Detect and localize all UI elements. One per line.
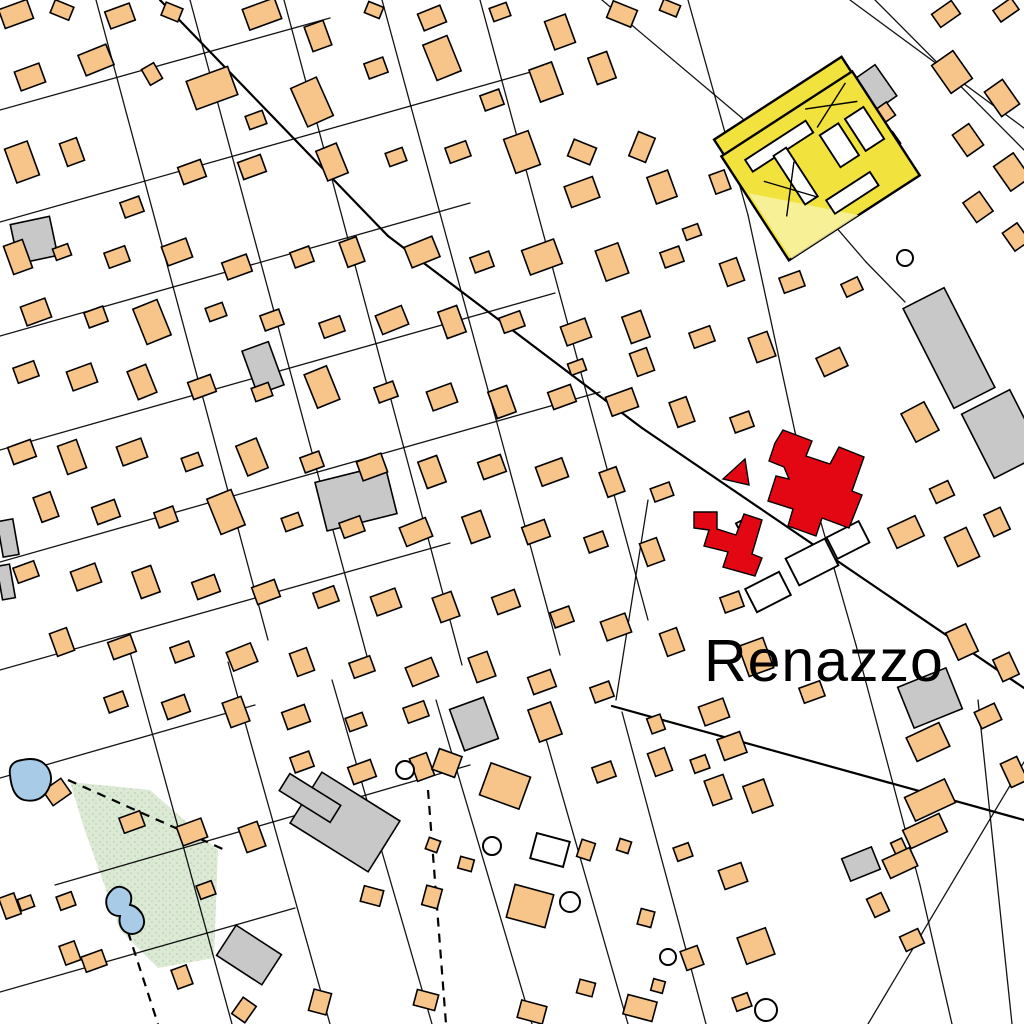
building: [92, 499, 121, 524]
building: [545, 14, 576, 50]
building: [81, 950, 107, 973]
building: [423, 36, 461, 81]
building: [186, 66, 238, 109]
building: [178, 159, 207, 184]
building: [588, 51, 616, 84]
building: [499, 311, 525, 334]
building: [304, 366, 340, 408]
building: [779, 271, 805, 294]
building: [349, 656, 375, 679]
building: [5, 141, 40, 183]
building: [364, 57, 388, 79]
building: [1002, 223, 1024, 251]
building: [528, 702, 562, 742]
building: [932, 51, 973, 94]
building: [984, 507, 1010, 536]
building: [374, 381, 398, 403]
building: [567, 359, 586, 376]
building: [719, 258, 744, 287]
building: [242, 0, 281, 30]
building: [418, 5, 447, 31]
building: [522, 519, 551, 544]
building: [59, 138, 84, 167]
building: [906, 723, 950, 762]
building: [698, 698, 729, 726]
building: [528, 669, 557, 694]
building: [901, 402, 939, 442]
building: [104, 246, 130, 269]
building: [647, 170, 677, 204]
building: [470, 251, 494, 273]
building: [260, 309, 284, 331]
building: [647, 748, 672, 777]
building: [66, 363, 97, 391]
building: [56, 892, 76, 911]
building: [13, 561, 39, 584]
building: [730, 411, 754, 433]
building: [0, 893, 21, 919]
building: [319, 316, 345, 339]
building: [245, 110, 267, 129]
building: [590, 681, 614, 703]
building: [720, 591, 744, 613]
building: [289, 648, 314, 677]
building: [673, 843, 693, 862]
building: [404, 236, 440, 268]
building: [217, 925, 282, 985]
building: [637, 908, 655, 927]
building: [506, 884, 553, 927]
building: [900, 929, 925, 952]
building: [13, 361, 39, 384]
building: [339, 237, 365, 268]
building: [984, 79, 1019, 116]
building: [629, 348, 654, 377]
building: [291, 77, 334, 127]
building: [364, 1, 383, 18]
building: [659, 0, 680, 17]
building: [952, 124, 983, 157]
map-viewport[interactable]: Renazzo: [0, 0, 1024, 1024]
building: [650, 482, 674, 502]
building: [584, 531, 608, 553]
building: [659, 628, 684, 657]
building: [300, 451, 324, 473]
building: [316, 143, 348, 181]
building: [445, 141, 471, 164]
building: [963, 191, 993, 222]
map-canvas[interactable]: Renazzo: [0, 0, 1024, 1024]
building: [993, 652, 1019, 681]
park-area: [70, 782, 218, 968]
building: [14, 63, 45, 91]
building: [478, 454, 507, 479]
building: [84, 306, 108, 328]
building: [120, 196, 144, 218]
building: [669, 397, 695, 428]
building: [0, 519, 19, 557]
building: [171, 965, 193, 989]
building: [994, 153, 1024, 191]
building: [522, 239, 563, 275]
building: [238, 821, 266, 852]
building: [290, 751, 314, 773]
building: [8, 439, 37, 464]
building: [568, 139, 597, 165]
building: [161, 238, 192, 266]
building: [413, 989, 438, 1010]
building: [33, 492, 59, 523]
building: [709, 170, 731, 194]
building: [468, 651, 496, 682]
building: [450, 697, 499, 751]
building: [944, 527, 979, 566]
building: [20, 298, 51, 326]
building: [345, 712, 367, 731]
building: [595, 243, 628, 281]
building: [154, 506, 178, 528]
building: [841, 277, 863, 297]
building: [599, 467, 625, 498]
building: [50, 0, 74, 20]
building: [680, 946, 704, 971]
building: [405, 657, 438, 686]
building: [422, 885, 443, 908]
building: [313, 586, 339, 609]
building: [1000, 756, 1024, 787]
building: [548, 384, 577, 409]
building: [622, 310, 650, 343]
building: [104, 691, 128, 713]
town-label: Renazzo: [704, 628, 944, 694]
main-roads: [160, 0, 1024, 820]
building: [308, 989, 331, 1015]
building: [993, 0, 1019, 22]
building: [281, 512, 303, 531]
building: [290, 246, 314, 268]
building: [432, 591, 460, 622]
building: [127, 364, 157, 399]
building: [479, 763, 530, 809]
building: [607, 1, 638, 27]
building: [732, 993, 752, 1012]
building: [689, 326, 715, 349]
building: [222, 254, 253, 280]
building: [560, 318, 591, 346]
building: [70, 563, 101, 591]
building: [57, 439, 86, 474]
building: [238, 154, 267, 179]
building: [903, 813, 948, 848]
building: [399, 517, 432, 546]
building: [282, 704, 311, 729]
building: [205, 302, 227, 321]
building: [162, 694, 191, 719]
building: [49, 628, 74, 657]
building: [745, 572, 791, 612]
building: [360, 886, 383, 907]
building: [962, 390, 1024, 479]
building: [682, 224, 701, 241]
building: [867, 893, 890, 918]
building: [737, 928, 775, 965]
building: [489, 2, 511, 21]
building: [930, 481, 955, 504]
building: [704, 774, 732, 805]
building: [660, 246, 684, 268]
building: [690, 755, 710, 774]
building: [529, 62, 563, 102]
building: [932, 1, 961, 28]
building: [550, 606, 574, 628]
building: [488, 385, 516, 418]
building: [535, 458, 568, 486]
building: [59, 941, 81, 965]
building: [743, 779, 773, 813]
building: [132, 565, 160, 598]
building: [192, 574, 221, 599]
building: [348, 759, 377, 784]
building: [605, 388, 638, 416]
building: [236, 438, 268, 476]
building: [161, 2, 183, 22]
building: [903, 288, 995, 409]
building: [748, 331, 776, 362]
building: [222, 696, 250, 727]
building: [370, 588, 401, 616]
building: [226, 643, 258, 671]
building: [504, 131, 541, 174]
building: [905, 779, 956, 821]
building: [17, 895, 34, 911]
building: [385, 147, 407, 166]
building: [304, 20, 332, 51]
building: [170, 641, 194, 663]
building: [651, 979, 666, 994]
building: [403, 701, 429, 724]
building: [426, 383, 457, 411]
building: [600, 613, 631, 641]
building: [577, 839, 596, 860]
building: [181, 452, 203, 471]
building: [592, 761, 616, 783]
building: [133, 300, 171, 345]
building: [105, 3, 136, 29]
building: [188, 374, 217, 399]
building: [375, 305, 408, 334]
building: [480, 89, 504, 111]
building: [418, 455, 446, 488]
building: [882, 848, 918, 879]
building: [842, 847, 881, 881]
building: [517, 1000, 547, 1024]
building: [232, 997, 257, 1023]
building: [425, 837, 440, 852]
pond: [10, 759, 51, 801]
building: [629, 132, 655, 163]
building: [616, 838, 631, 853]
building: [462, 510, 490, 543]
building: [564, 177, 600, 208]
building: [639, 538, 664, 567]
building: [207, 490, 245, 535]
building: [458, 856, 475, 871]
building: [816, 347, 848, 376]
building: [888, 516, 924, 549]
building: [492, 589, 521, 614]
building: [576, 979, 595, 997]
building: [0, 0, 34, 29]
building: [647, 714, 666, 734]
building: [623, 994, 657, 1021]
building: [718, 862, 747, 889]
building: [252, 579, 281, 604]
building: [438, 305, 466, 338]
building: [116, 438, 147, 466]
building: [530, 833, 570, 867]
